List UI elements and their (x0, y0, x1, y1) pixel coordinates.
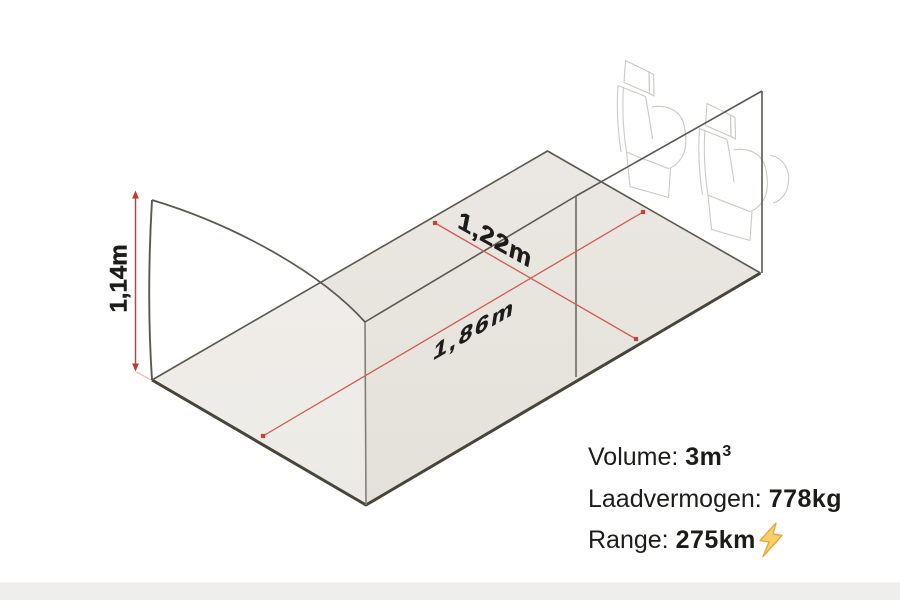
svg-text:Range: 275km: Range: 275km (588, 526, 756, 554)
svg-text:Volume: 3m3: Volume: 3m3 (588, 443, 731, 471)
svg-text:Laadvermogen: 778kg: Laadvermogen: 778kg (588, 485, 842, 513)
svg-text:1,14m: 1,14m (106, 244, 133, 312)
